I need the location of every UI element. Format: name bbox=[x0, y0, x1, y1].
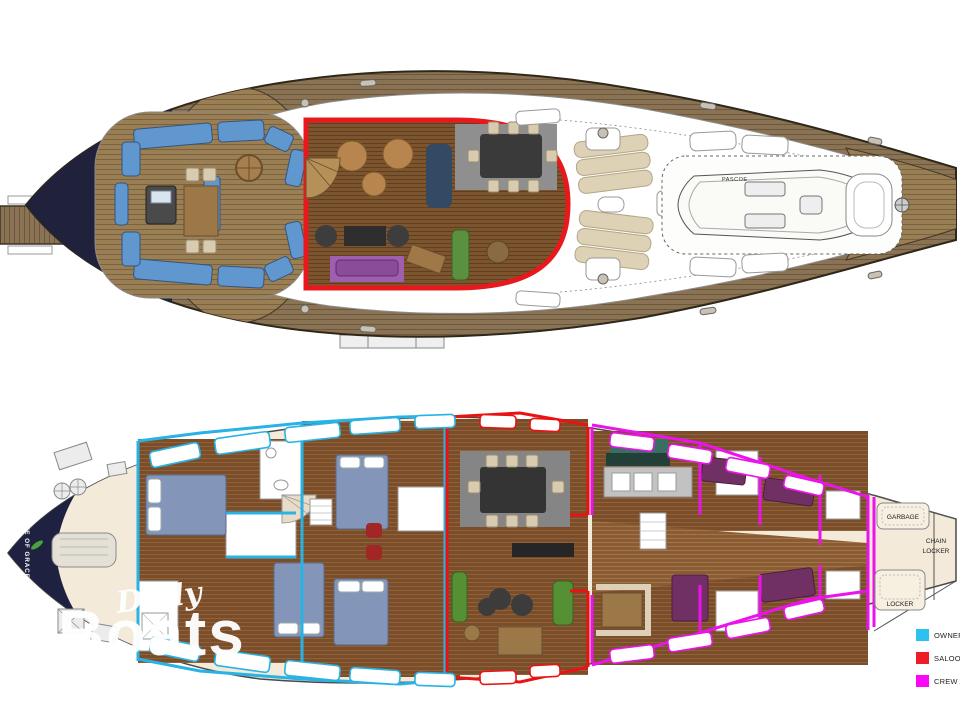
tender-seat-2 bbox=[745, 214, 785, 228]
chain-locker-label-2: LOCKER bbox=[923, 548, 950, 555]
deck-box-1 bbox=[516, 108, 561, 125]
deck-box-2 bbox=[516, 290, 561, 307]
red-chair-2 bbox=[366, 545, 382, 560]
armchair-tan-2 bbox=[383, 139, 413, 169]
deck-saloon bbox=[306, 120, 568, 288]
yacht-plan-page: PASCOE bbox=[0, 0, 960, 720]
round-table bbox=[362, 172, 386, 196]
club-chair-3 bbox=[478, 598, 496, 616]
legend-row-owners: OWNERS bbox=[916, 629, 960, 641]
sink bbox=[266, 448, 276, 458]
tender-label: PASCOE bbox=[722, 177, 748, 183]
legend-label-saloon: SALOON bbox=[934, 654, 960, 663]
crew-mess-table bbox=[602, 593, 642, 627]
toilet bbox=[274, 480, 288, 490]
coffee-table bbox=[498, 627, 542, 655]
anchor-locker bbox=[846, 174, 892, 236]
dining-table bbox=[480, 467, 546, 513]
stool bbox=[464, 625, 480, 641]
club-chair-2 bbox=[511, 594, 533, 616]
side-table bbox=[487, 241, 509, 263]
media-cabinet bbox=[344, 226, 386, 246]
garbage-label: GARBAGE bbox=[887, 514, 920, 521]
cockpit-table bbox=[184, 186, 218, 236]
crew-color-swatch bbox=[916, 675, 929, 687]
tender-seat-1 bbox=[745, 182, 785, 196]
green-sofa bbox=[452, 230, 469, 280]
armchair-tan-1 bbox=[337, 141, 367, 171]
red-chair-1 bbox=[366, 523, 382, 538]
liferaft bbox=[598, 197, 624, 212]
tender-console bbox=[800, 196, 822, 214]
legend-row-saloon: SALOON bbox=[916, 652, 960, 664]
navy-sofa bbox=[426, 144, 452, 208]
legend-label-owners: OWNERS bbox=[934, 631, 960, 640]
aft-cockpit bbox=[95, 112, 310, 298]
legend-label-crew: CREW AREA bbox=[934, 677, 960, 686]
locker-label: LOCKER bbox=[887, 601, 914, 608]
boat-name: STATE OF GRACE bbox=[23, 511, 30, 579]
saloon-color-swatch bbox=[916, 652, 929, 664]
interior-accommodation-plan: STATE OF GRACE bbox=[0, 395, 960, 720]
green-sofa-2 bbox=[553, 581, 573, 625]
zone-legend: OWNERS SALOON CREW AREA bbox=[916, 629, 960, 698]
galley-counter-dark bbox=[606, 453, 670, 466]
armchair-dark-2 bbox=[387, 225, 409, 247]
deck-plan-top-view: PASCOE bbox=[0, 0, 960, 365]
armchair-dark-1 bbox=[315, 225, 337, 247]
owners-color-swatch bbox=[916, 629, 929, 641]
helm-screen bbox=[151, 191, 171, 203]
chain-locker-label-1: CHAIN bbox=[926, 538, 947, 545]
sideboard bbox=[512, 543, 574, 557]
green-sofa-1 bbox=[452, 572, 467, 622]
saloon-zone bbox=[447, 413, 588, 682]
dining-table bbox=[480, 134, 542, 178]
legend-row-crew: CREW AREA bbox=[916, 675, 960, 687]
stair-steps bbox=[310, 499, 332, 525]
purple-sofa bbox=[336, 260, 398, 276]
